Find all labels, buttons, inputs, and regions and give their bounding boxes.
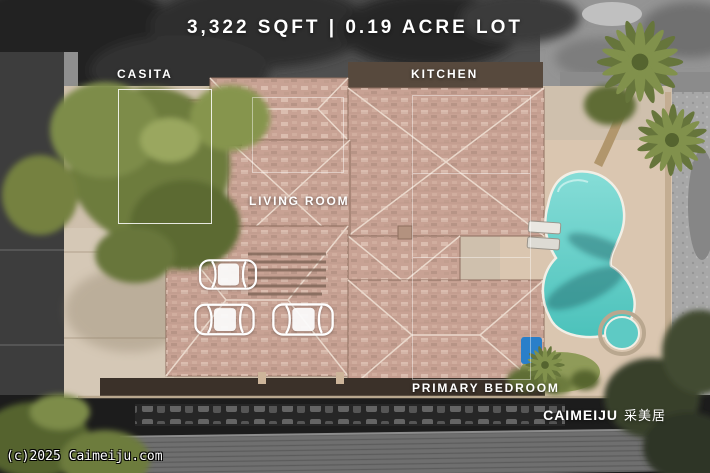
car-outline-icon <box>271 302 335 337</box>
copyright-notice: (c)2025 Caimeiju.com <box>6 450 163 463</box>
room-label-living-room: LIVING ROOM <box>249 195 349 207</box>
aerial-photo <box>0 0 710 473</box>
annotated-aerial-photo: 3,322 SQFT | 0.19 ACRE LOT CASITA KITCHE… <box>0 0 710 473</box>
brand-watermark: CAIMEIJU采美居 <box>543 408 666 422</box>
room-label-kitchen: KITCHEN <box>411 68 478 80</box>
brand-name: CAIMEIJU <box>543 407 618 423</box>
car-outline-icon <box>198 258 258 291</box>
car-outline-icon <box>194 302 255 337</box>
room-label-primary-bedroom: PRIMARY BEDROOM <box>412 382 560 394</box>
room-label-casita: CASITA <box>117 68 173 80</box>
property-title: 3,322 SQFT | 0.19 ACRE LOT <box>0 18 710 37</box>
brand-name-chinese: 采美居 <box>624 408 666 423</box>
